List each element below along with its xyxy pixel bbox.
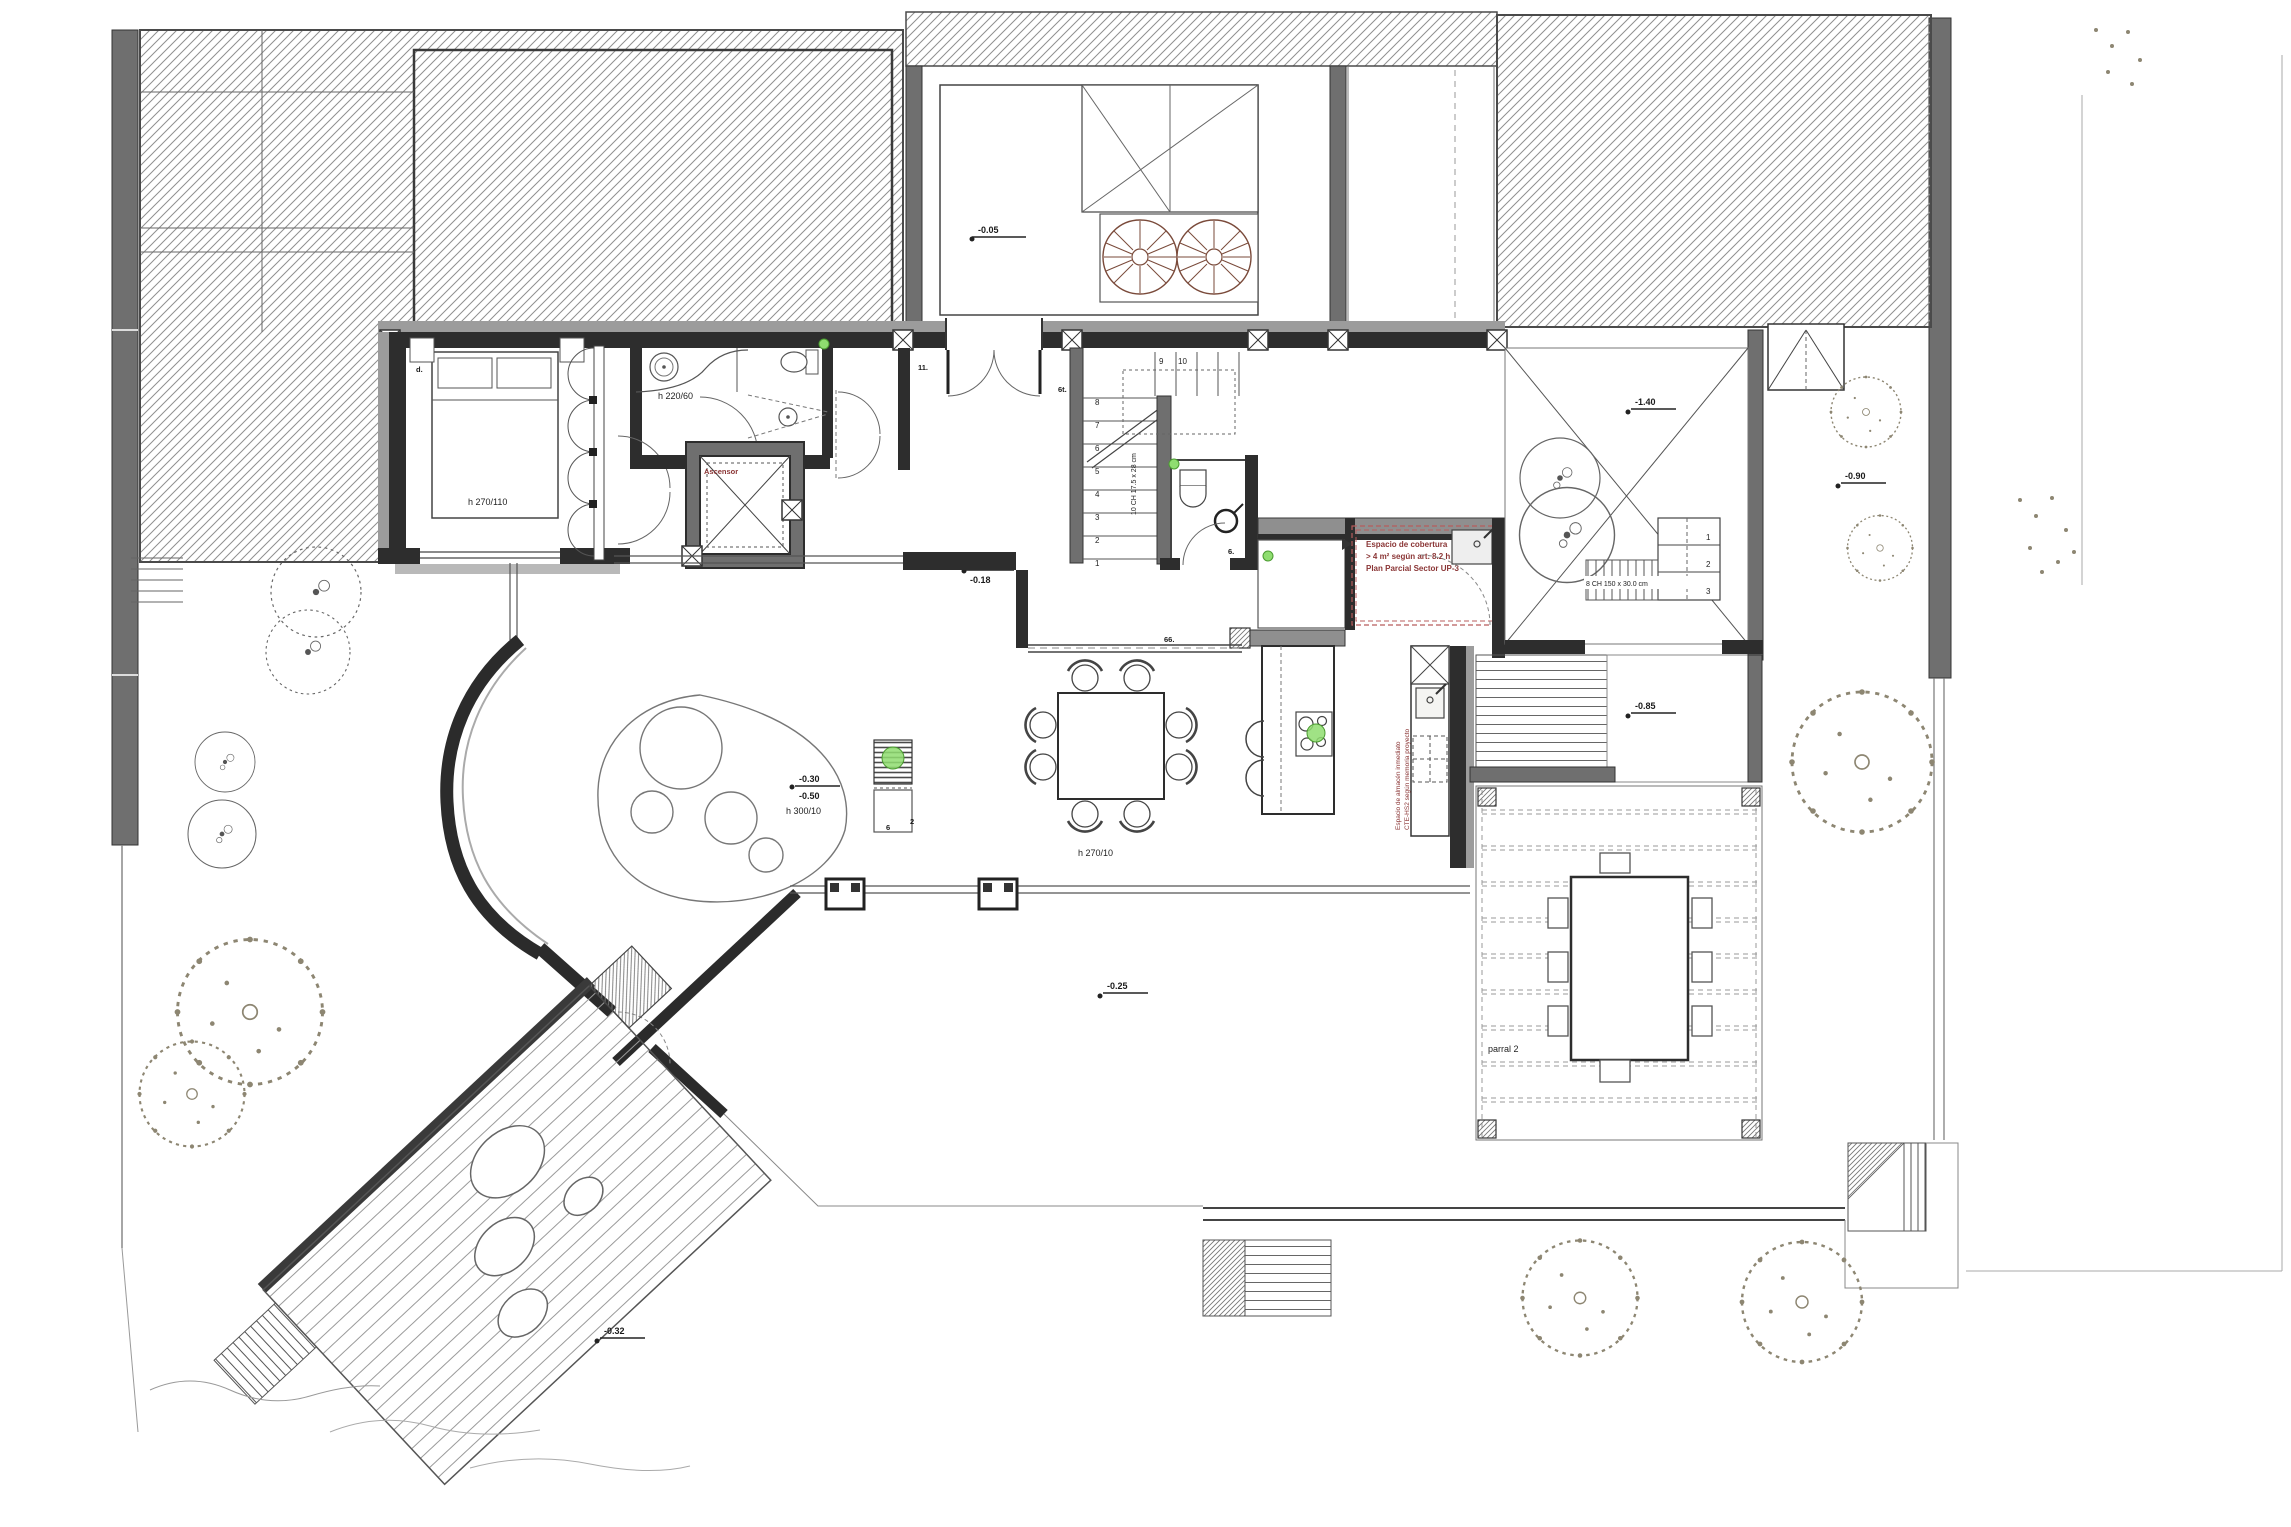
- tag-bedroom: d.: [416, 365, 423, 374]
- pergola-post: [1478, 1120, 1496, 1138]
- facade-column: [826, 879, 864, 909]
- height-dining: h 270/10: [1078, 848, 1113, 858]
- garden-shed: [1768, 324, 1844, 390]
- level-patio: -0.85: [1635, 701, 1656, 711]
- kitchen-tall-units: [1411, 646, 1449, 836]
- green-marker-icon: [819, 339, 829, 349]
- bed: [432, 352, 558, 518]
- bedroom: d. h 270/110: [378, 332, 670, 574]
- boundary-stair-rungs: [1245, 1240, 1331, 1316]
- tag-media-a: 6: [886, 823, 890, 832]
- level-east-garden: -0.90: [1845, 471, 1866, 481]
- exterior-stair-annotation: 8 CH 150 x 30.0 cm: [1586, 581, 1648, 588]
- tree-icon: [266, 610, 350, 694]
- stair-number: 10: [1178, 357, 1187, 366]
- outdoor-table: [1571, 877, 1688, 1060]
- pergola-post: [1478, 788, 1496, 806]
- stair-number: 9: [1159, 357, 1164, 366]
- stair-number: 5: [1095, 467, 1100, 476]
- step-number: 2: [1706, 560, 1711, 569]
- entry-door: [948, 350, 1040, 396]
- floor-plan-drawing: -0.05 d. h 270/110: [0, 0, 2291, 1527]
- planter-tree-icon: [1177, 220, 1251, 294]
- storage-note-line1: Espacio de almacén inmediato: [1395, 741, 1402, 830]
- pergola-label: parral 2: [1488, 1044, 1519, 1054]
- stair-annotation: 10 CH 17.5 x 28 cm: [1131, 453, 1138, 515]
- media-fireplace-unit: 6 2: [874, 740, 914, 832]
- pergola: parral 2: [1476, 786, 1762, 1140]
- toilet: [781, 350, 818, 374]
- pergola-post: [1742, 788, 1760, 806]
- east-patio: -0.85: [1470, 655, 1762, 782]
- tree-icon: [175, 937, 326, 1088]
- wardrobe-folding-doors: [568, 346, 604, 560]
- step-number: 1: [1706, 533, 1711, 542]
- tree-icon: [195, 732, 255, 792]
- toilet: [1180, 470, 1206, 507]
- site-boundary-right: [1929, 18, 1951, 1140]
- laundry-note-line1: Espacio de cobertura: [1366, 540, 1448, 549]
- pergola-post: [1742, 1120, 1760, 1138]
- level-terrace: -1.40: [1635, 397, 1656, 407]
- level-living-lower: -0.50: [799, 791, 820, 801]
- dining-room: 66. h 270/10: [903, 552, 1242, 858]
- facade-column: [979, 879, 1017, 909]
- floor-plan-canvas: -0.05 d. h 270/110: [0, 0, 2291, 1527]
- tree-icon: [1520, 1238, 1640, 1358]
- tree-icon: [1830, 376, 1903, 449]
- wc: 6.: [1160, 455, 1258, 570]
- height-bathroom: h 220/60: [658, 391, 693, 401]
- bifold-door: [836, 390, 880, 480]
- tree-icon: [137, 1039, 246, 1148]
- tag-hall-b: 6t.: [1058, 385, 1067, 394]
- level-marker-south-terrace: -0.25: [1098, 981, 1149, 999]
- storage-note-line2: CTE-HS2 según memoria proyecto: [1404, 728, 1411, 830]
- tree-icon: [1740, 1240, 1865, 1365]
- tag-wc: 6.: [1228, 547, 1234, 556]
- stair-number: 8: [1095, 398, 1100, 407]
- green-marker-icon: [882, 747, 904, 769]
- boundary-steps: [131, 558, 183, 602]
- kitchen: Espacio de almacén inmediato CTE-HS2 seg…: [1230, 628, 1474, 868]
- green-marker-icon: [1263, 551, 1273, 561]
- level-marker-east-garden: -0.90: [1836, 471, 1887, 489]
- laundry-note-line2: > 4 m² según art. 8.2 h: [1366, 552, 1450, 561]
- elevator-label: Ascensor: [704, 467, 738, 476]
- level-terrace-south: -0.25: [1107, 981, 1128, 991]
- stair-number: 2: [1095, 536, 1100, 545]
- tree-icon: [188, 800, 256, 868]
- laundry-note-line3: Plan Parcial Sector UP-3: [1366, 564, 1459, 573]
- stair-number: 4: [1095, 490, 1100, 499]
- boundary-stair-hatch: [1203, 1240, 1245, 1316]
- green-marker-icon: [1169, 459, 1179, 469]
- level-deck: -0.32: [604, 1326, 625, 1336]
- neighbour-building-northeast: [1497, 15, 1931, 327]
- terrain-line: [470, 1459, 690, 1471]
- stair-number: 7: [1095, 421, 1100, 430]
- bedroom-door-arcs: [618, 436, 670, 544]
- stair-number: 1: [1095, 559, 1100, 568]
- stair-number: 6: [1095, 444, 1100, 453]
- step-number: 3: [1706, 587, 1711, 596]
- level-hall-lower: -0.18: [970, 575, 991, 585]
- height-bedroom: h 270/110: [468, 497, 507, 507]
- wood-deck: [196, 940, 813, 1527]
- northeast-terrace: -1.40 1 2 3 8 CH 150 x 30.0 cm: [1505, 330, 1763, 660]
- tag-dining: 66.: [1164, 635, 1174, 644]
- neighbour-building-north: [906, 12, 1497, 66]
- south-facade: -0.25: [790, 879, 1470, 999]
- entry-wardrobe: [1082, 85, 1258, 212]
- elevator: Ascensor: [682, 442, 804, 568]
- vegetation-dots: [2018, 28, 2142, 574]
- stair-number: 3: [1095, 513, 1100, 522]
- tag-media-b: 2: [910, 817, 914, 826]
- green-marker-icon: [1307, 724, 1325, 742]
- main-stair: 1 2 3 4 5 6 7 8 9 10 10 CH 17.5 x 28 cm: [1070, 348, 1239, 568]
- tree-icon: [1789, 689, 1935, 835]
- shower: [748, 395, 828, 438]
- level-living-upper: -0.30: [799, 774, 820, 784]
- planter-tree-icon: [1103, 220, 1177, 294]
- living-room: 6 2 -0.30 -0.50 h 300/10: [447, 556, 914, 1114]
- height-living: h 300/10: [786, 806, 821, 816]
- south-boundary: [724, 1114, 2282, 1364]
- level-entry: -0.05: [978, 225, 999, 235]
- tree-icon: [1846, 514, 1914, 582]
- level-marker-living: -0.30 -0.50: [790, 774, 841, 801]
- nightstand: [560, 338, 584, 362]
- washbasin: [650, 353, 678, 381]
- nightstand: [410, 338, 434, 362]
- tag-hall-a: 11.: [918, 363, 928, 372]
- site-boundary-left: [112, 30, 138, 1432]
- dining-table: [1058, 693, 1164, 799]
- kitchen-island: [1246, 646, 1334, 814]
- laundry-reserved-space: Espacio de cobertura > 4 m² según art. 8…: [1342, 526, 1503, 625]
- southeast-steps: [1848, 1143, 1926, 1231]
- entry-courtyard: -0.05: [906, 66, 1494, 332]
